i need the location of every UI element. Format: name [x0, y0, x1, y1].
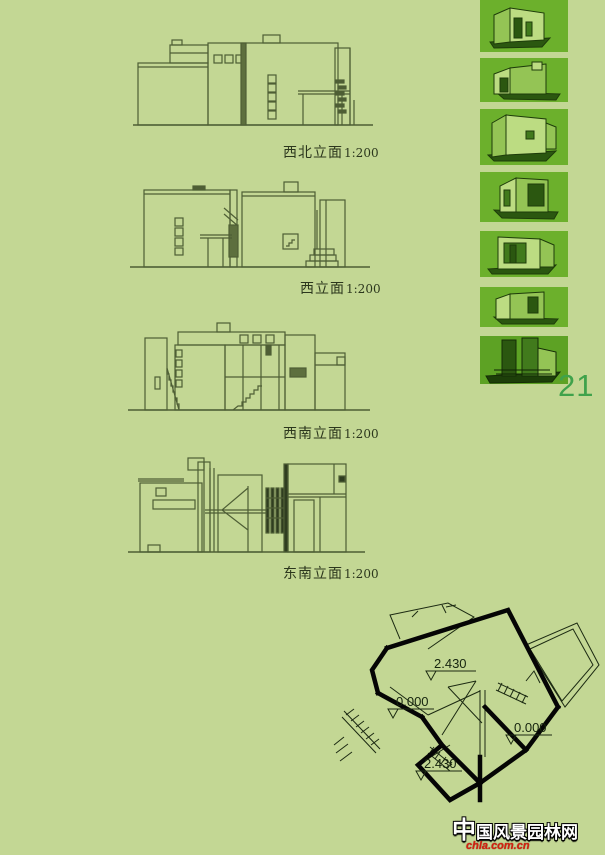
model-thumbnail-5 — [480, 231, 568, 277]
elevation-title: 西北立面 — [283, 145, 343, 161]
plan-level-label-4: 2.430 — [424, 756, 457, 771]
model-thumbnail-1 — [480, 0, 568, 52]
model-thumbnail-3 — [480, 109, 568, 165]
model-thumbnail-4 — [480, 172, 568, 222]
site-watermark: 中国风景园林网 chla.com.cn — [452, 818, 602, 852]
southeast-elevation-drawing — [120, 450, 380, 557]
southeast-elevation-block: 东南立面1:200 — [120, 450, 380, 585]
elevation-title: 东南立面 — [283, 566, 343, 582]
northwest-elevation-drawing — [120, 20, 380, 150]
plan-level-label-2: 0.000 — [396, 694, 429, 709]
elevation-title: 西南立面 — [283, 426, 343, 442]
west-elevation-drawing — [120, 170, 380, 272]
model-thumbnail-7 — [480, 336, 568, 384]
model-thumbnail-strip — [480, 0, 568, 384]
southeast-elevation-label: 东南立面1:200 — [283, 563, 379, 583]
southwest-elevation-block: 西南立面1:200 — [120, 310, 380, 450]
west-elevation-block: 西立面1:200 — [120, 170, 380, 295]
elevation-scale: 1:200 — [344, 427, 379, 441]
northwest-elevation-label: 西北立面1:200 — [283, 142, 379, 162]
model-thumbnail-6 — [480, 287, 568, 327]
elevation-scale: 1:200 — [346, 282, 381, 296]
model-thumbnail-2 — [480, 58, 568, 102]
elevation-scale: 1:200 — [344, 567, 379, 581]
southwest-elevation-drawing — [120, 310, 380, 415]
floor-plan: 2.430 0.000 0.000 2.430 — [330, 595, 605, 823]
plan-level-label-1: 2.430 — [434, 656, 467, 671]
elevation-title: 西立面 — [300, 281, 345, 297]
west-elevation-label: 西立面1:200 — [300, 278, 381, 298]
plan-level-label-3: 0.000 — [514, 720, 547, 735]
elevation-scale: 1:200 — [344, 146, 379, 160]
page-number: 21 — [558, 368, 594, 404]
northwest-elevation-block: 西北立面1:200 — [120, 20, 380, 170]
floor-plan-drawing: 2.430 0.000 0.000 2.430 — [330, 595, 605, 823]
watermark-site-name: 中国风景园林网 — [452, 818, 602, 842]
southwest-elevation-label: 西南立面1:200 — [283, 423, 379, 443]
